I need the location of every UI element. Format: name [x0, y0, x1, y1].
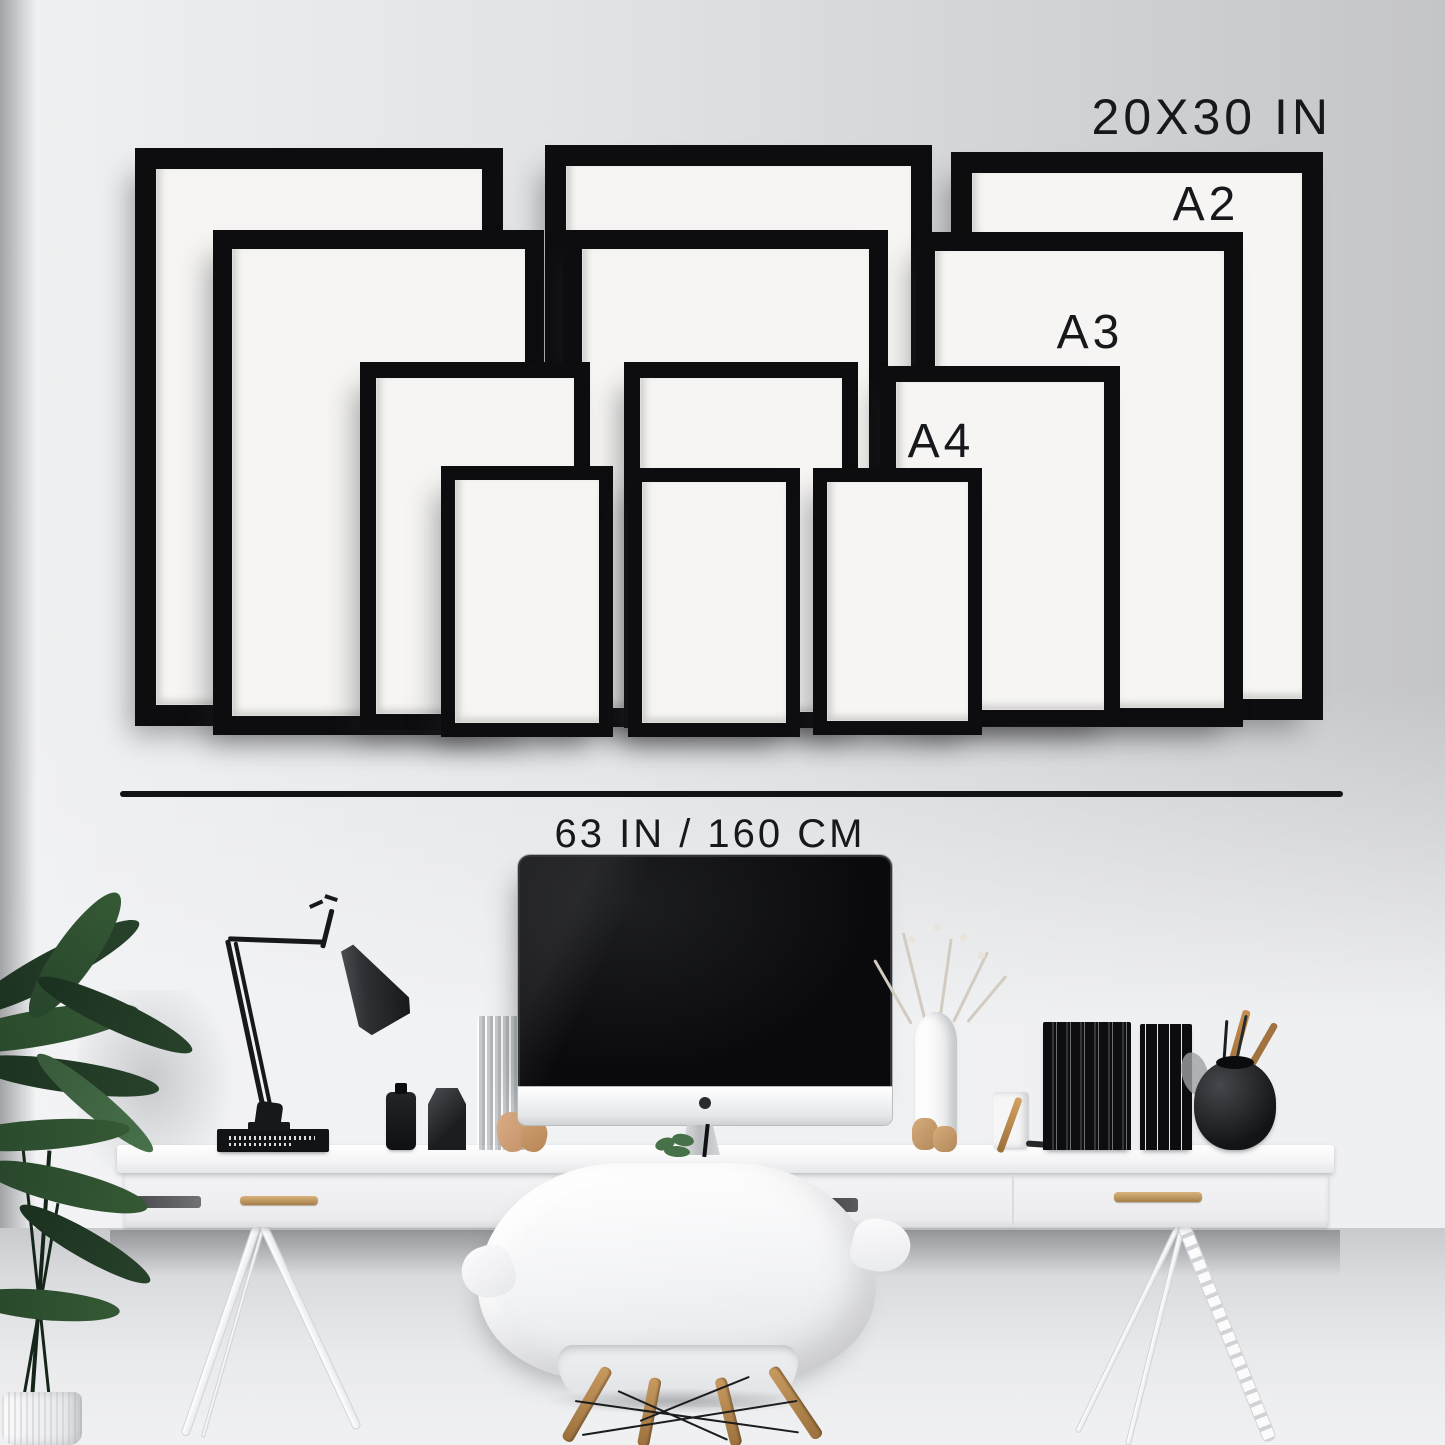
book-spine-text — [229, 1143, 293, 1146]
drawer-handle-left — [240, 1196, 318, 1205]
measurement-line — [120, 791, 1343, 797]
label-wall-width: 63 IN / 160 CM — [460, 812, 960, 857]
imac-logo — [699, 1097, 711, 1109]
label-size-a3: A3 — [1034, 309, 1146, 357]
bottle-cap — [395, 1083, 407, 1094]
frame-left-a4 — [441, 466, 613, 737]
room-photo: 20X30 IN A2 A3 A4 63 IN / 160 CM — [0, 0, 1445, 1445]
plant-pot — [2, 1392, 82, 1445]
branch-floret — [960, 934, 967, 941]
frame-middle-a4 — [628, 468, 800, 737]
wood-decor — [933, 1126, 957, 1152]
book-spine-text — [229, 1136, 315, 1140]
frame-right-a4 — [813, 468, 982, 735]
drawer-handle-right — [1114, 1192, 1202, 1202]
label-size-20x30: 20X30 IN — [1000, 92, 1332, 142]
label-size-a2: A2 — [1150, 181, 1262, 229]
screen-glare — [520, 857, 890, 1087]
marbled-books-row — [1140, 1024, 1192, 1150]
black-book — [217, 1129, 329, 1152]
label-size-a4: A4 — [885, 418, 997, 466]
imac-screen — [518, 855, 892, 1087]
drawer-seam — [1012, 1175, 1014, 1225]
black-books-row — [1043, 1022, 1131, 1150]
vase-opening — [1216, 1056, 1254, 1069]
black-bottle — [386, 1092, 416, 1150]
dark-decanter — [428, 1088, 466, 1150]
branch-floret — [934, 924, 941, 931]
black-round-vase — [1194, 1060, 1276, 1150]
branch-floret — [908, 936, 915, 943]
white-bookend — [1131, 1026, 1140, 1150]
branch-floret — [978, 952, 985, 959]
